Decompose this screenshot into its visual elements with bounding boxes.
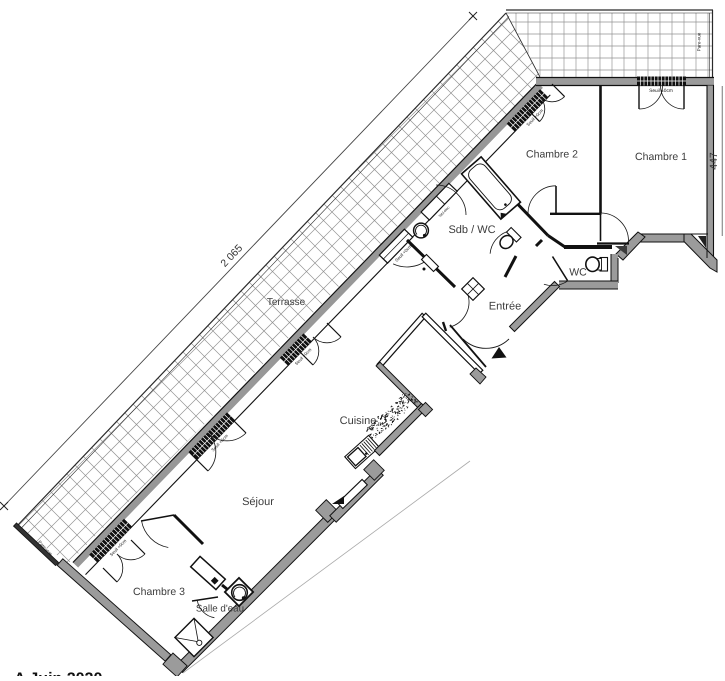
svg-text:Cuisine: Cuisine (340, 415, 377, 427)
svg-text:Chambre 2: Chambre 2 (526, 149, 578, 161)
svg-text:Chambre 3: Chambre 3 (133, 586, 185, 598)
svg-text:Sdb / WC: Sdb / WC (448, 224, 495, 236)
svg-text:Pare-vue: Pare-vue (697, 32, 702, 51)
svg-text:Terrasse: Terrasse (267, 297, 306, 308)
svg-text:Chambre 1: Chambre 1 (635, 151, 687, 163)
svg-text:Séjour: Séjour (242, 496, 274, 508)
svg-text:WC: WC (569, 267, 587, 279)
svg-text:447: 447 (708, 152, 720, 170)
svg-text:Entrée: Entrée (489, 301, 521, 313)
svg-text:A Juin 2020: A Juin 2020 (14, 671, 102, 677)
